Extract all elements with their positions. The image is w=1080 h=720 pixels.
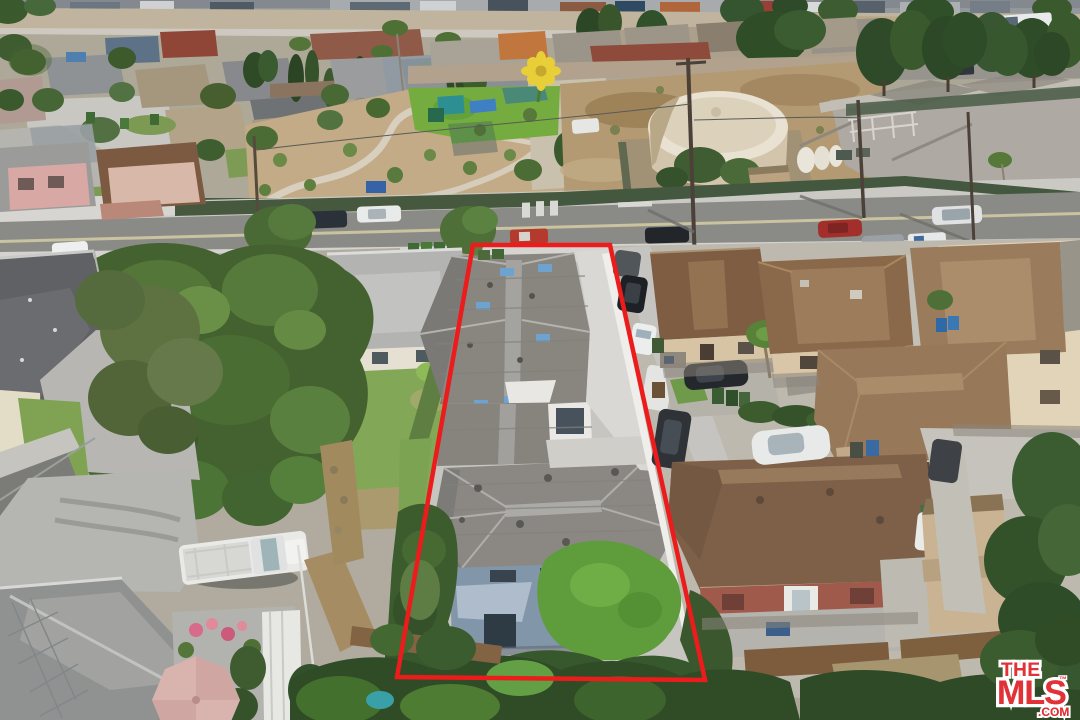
svg-text:.COM: .COM [1038,705,1069,719]
svg-text:™: ™ [1059,675,1067,684]
